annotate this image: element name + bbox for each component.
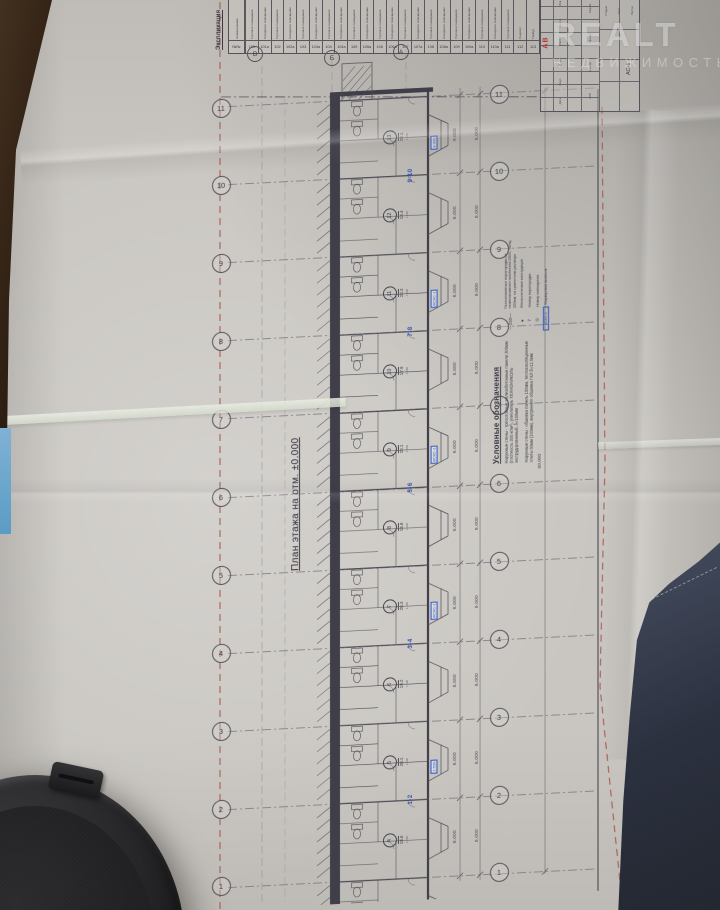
explication-room-number: 110 (476, 40, 488, 53)
explication-column: Складское помещение 102а (283, 0, 296, 53)
explication-column: Торговое помещение 102 (271, 0, 284, 53)
explication-room-name: Торговое помещение (378, 0, 382, 40)
explication-room-name: Складское помещение (390, 0, 394, 40)
paper-crease (0, 478, 720, 504)
photo-of-blueprint: 1110987654321 1110987654321 9.0006.0006.… (0, 0, 720, 910)
explication-column: Санузел 112 (513, 0, 526, 53)
title-block-stage-label: Лист (617, 8, 621, 14)
explication-table: Наименование №№ Торговое помещение 101 С… (228, 0, 540, 54)
title-block-role: ГИП (588, 93, 592, 99)
explication-room-name: Складское помещение (365, 0, 369, 40)
explication-room-number: 102 (272, 40, 284, 53)
explication-title: Экспликация (211, 0, 226, 50)
explication-room-name: Складское помещение (263, 0, 267, 40)
explication-room-name: Складское помещение (442, 0, 446, 40)
explication-room-name: Торговое помещение (429, 0, 433, 40)
title-block-roles: Разраб.Провер.Н.контр.ГИП (581, 0, 599, 111)
axis-letter: А (393, 44, 409, 60)
explication-room-name: Складское помещение (288, 0, 292, 40)
explication-column: Складское помещение 103а (309, 0, 322, 53)
explication-room-name: Складское помещение (467, 0, 471, 40)
title-block: Изм.Кол.уч.Лист№ док.Подп.Дата Разраб.Пр… (540, 0, 640, 112)
title-block-label: Изм. (558, 0, 562, 6)
explication-room-name: Торговое помещение (454, 0, 458, 40)
explication-room-name: Тамбур (531, 0, 535, 40)
red-stamp: АВ (543, 36, 550, 48)
title-block-role: Н.контр. (588, 61, 592, 72)
explication-column: Складское помещение 104а (334, 0, 347, 53)
title-block-role: Разраб. (588, 3, 592, 13)
title-block-label: Подп. (558, 78, 562, 85)
explication-column: Торговое помещение 108 (424, 0, 437, 53)
explication-room-number: 112 (514, 40, 526, 53)
explication-room-number: 109а (463, 40, 475, 53)
explication-column: Складское помещение 109а (462, 0, 475, 53)
title-block-stage-label: Стадия (604, 6, 608, 16)
blue-object-edge (0, 428, 11, 534)
axis-letter: Б (324, 50, 340, 66)
explication-column: Складское помещение 101а (258, 0, 271, 53)
explication-room-name: Торговое помещение (480, 0, 484, 40)
title-block-label: Кол.уч. (558, 18, 562, 27)
explication-room-number: 102а (284, 40, 296, 53)
explication-columns: Торговое помещение 101 Складское помещен… (245, 0, 539, 53)
explication-name-label: Наименование (235, 0, 239, 40)
explication-room-number: 105а (361, 40, 373, 53)
explication-room-name: Складское помещение (314, 0, 318, 40)
explication-room-name: Санузел (518, 0, 522, 40)
title-block-stage: СтадияЛистЛистов (599, 0, 639, 29)
explication-column: Торговое помещение 110 (475, 0, 488, 53)
title-block-role: Провер. (588, 32, 592, 42)
explication-room-name: Торговое помещение (327, 0, 331, 40)
explication-room-number: 106 (374, 40, 386, 53)
explication-room-number: 103а (310, 40, 322, 53)
explication-room-number: 103 (297, 40, 309, 53)
explication-room-name: Торговое помещение (506, 0, 510, 40)
explication-room-number: 109 (451, 40, 463, 53)
explication-room-number: 113 (527, 40, 539, 53)
explication-column: Тамбур 113 (526, 0, 539, 53)
explication-room-number: 105 (348, 40, 360, 53)
explication-room-name: Складское помещение (339, 0, 343, 40)
explication-column: Торговое помещение 103 (296, 0, 309, 53)
explication-column: Складское помещение 110а (488, 0, 501, 53)
explication-header-col: Наименование №№ (229, 0, 245, 53)
title-block-label: Дата (558, 98, 562, 104)
explication-column: Торговое помещение 104 (322, 0, 335, 53)
explication-room-number: 111 (502, 40, 514, 53)
title-block-label: Лист (558, 39, 562, 45)
title-block-label: № док. (558, 57, 562, 67)
explication-room-number: 107а (412, 40, 424, 53)
axis-letter: В (247, 46, 263, 62)
title-block-doc-code: АС-1 (621, 33, 637, 105)
explication-column: Складское помещение 107а (411, 0, 424, 53)
explication-room-number: 108 (425, 40, 437, 53)
explication-room-name: Складское помещение (416, 0, 420, 40)
explication-column: Складское помещение 105а (360, 0, 373, 53)
explication-room-name: Торговое помещение (352, 0, 356, 40)
explication-room-number: 108а (438, 40, 450, 53)
explication-column: Торговое помещение 111 (501, 0, 514, 53)
explication-room-name: Складское помещение (493, 0, 497, 40)
explication-column: Торговое помещение 109 (450, 0, 463, 53)
explication-room-number: 110а (489, 40, 501, 53)
explication-num-label: №№ (229, 40, 244, 53)
title-block-left-labels: Изм.Кол.уч.Лист№ док.Подп.Дата (553, 0, 567, 111)
explication-column: Складское помещение 108а (437, 0, 450, 53)
explication-column: Торговое помещение 105 (347, 0, 360, 53)
explication-column: Торговое помещение 106 (373, 0, 386, 53)
title-block-stage-label: Листов (630, 6, 634, 15)
explication-room-name: Торговое помещение (403, 0, 407, 40)
explication-room-name: Торговое помещение (275, 0, 279, 40)
explication-room-name: Торговое помещение (301, 0, 305, 40)
explication-room-name: Торговое помещение (250, 0, 254, 40)
